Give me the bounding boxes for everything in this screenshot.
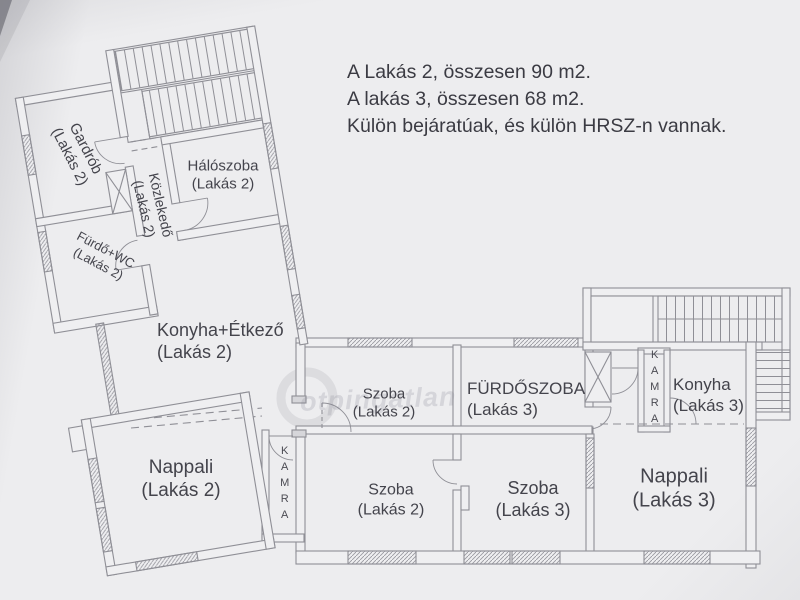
staircase-right	[583, 288, 790, 420]
note-line-2: A lakás 3, összesen 68 m2.	[347, 86, 726, 113]
shaft-right	[585, 352, 611, 402]
floor-plan-page: A Lakás 2, összesen 90 m2. A lakás 3, ös…	[0, 0, 800, 600]
note-line-3: Külön bejáratúak, és külön HRSZ-n vannak…	[347, 113, 726, 140]
description-note: A Lakás 2, összesen 90 m2. A lakás 3, ös…	[347, 59, 726, 139]
right-wing-walls	[128, 288, 790, 568]
left-wing-walls	[8, 26, 340, 578]
scan-corner-shadow	[0, 0, 30, 62]
note-line-1: A Lakás 2, összesen 90 m2.	[347, 59, 726, 86]
nappali-l2-walls	[68, 392, 276, 578]
watermark-logo	[281, 372, 333, 424]
kamra-l3-walls	[638, 348, 670, 432]
